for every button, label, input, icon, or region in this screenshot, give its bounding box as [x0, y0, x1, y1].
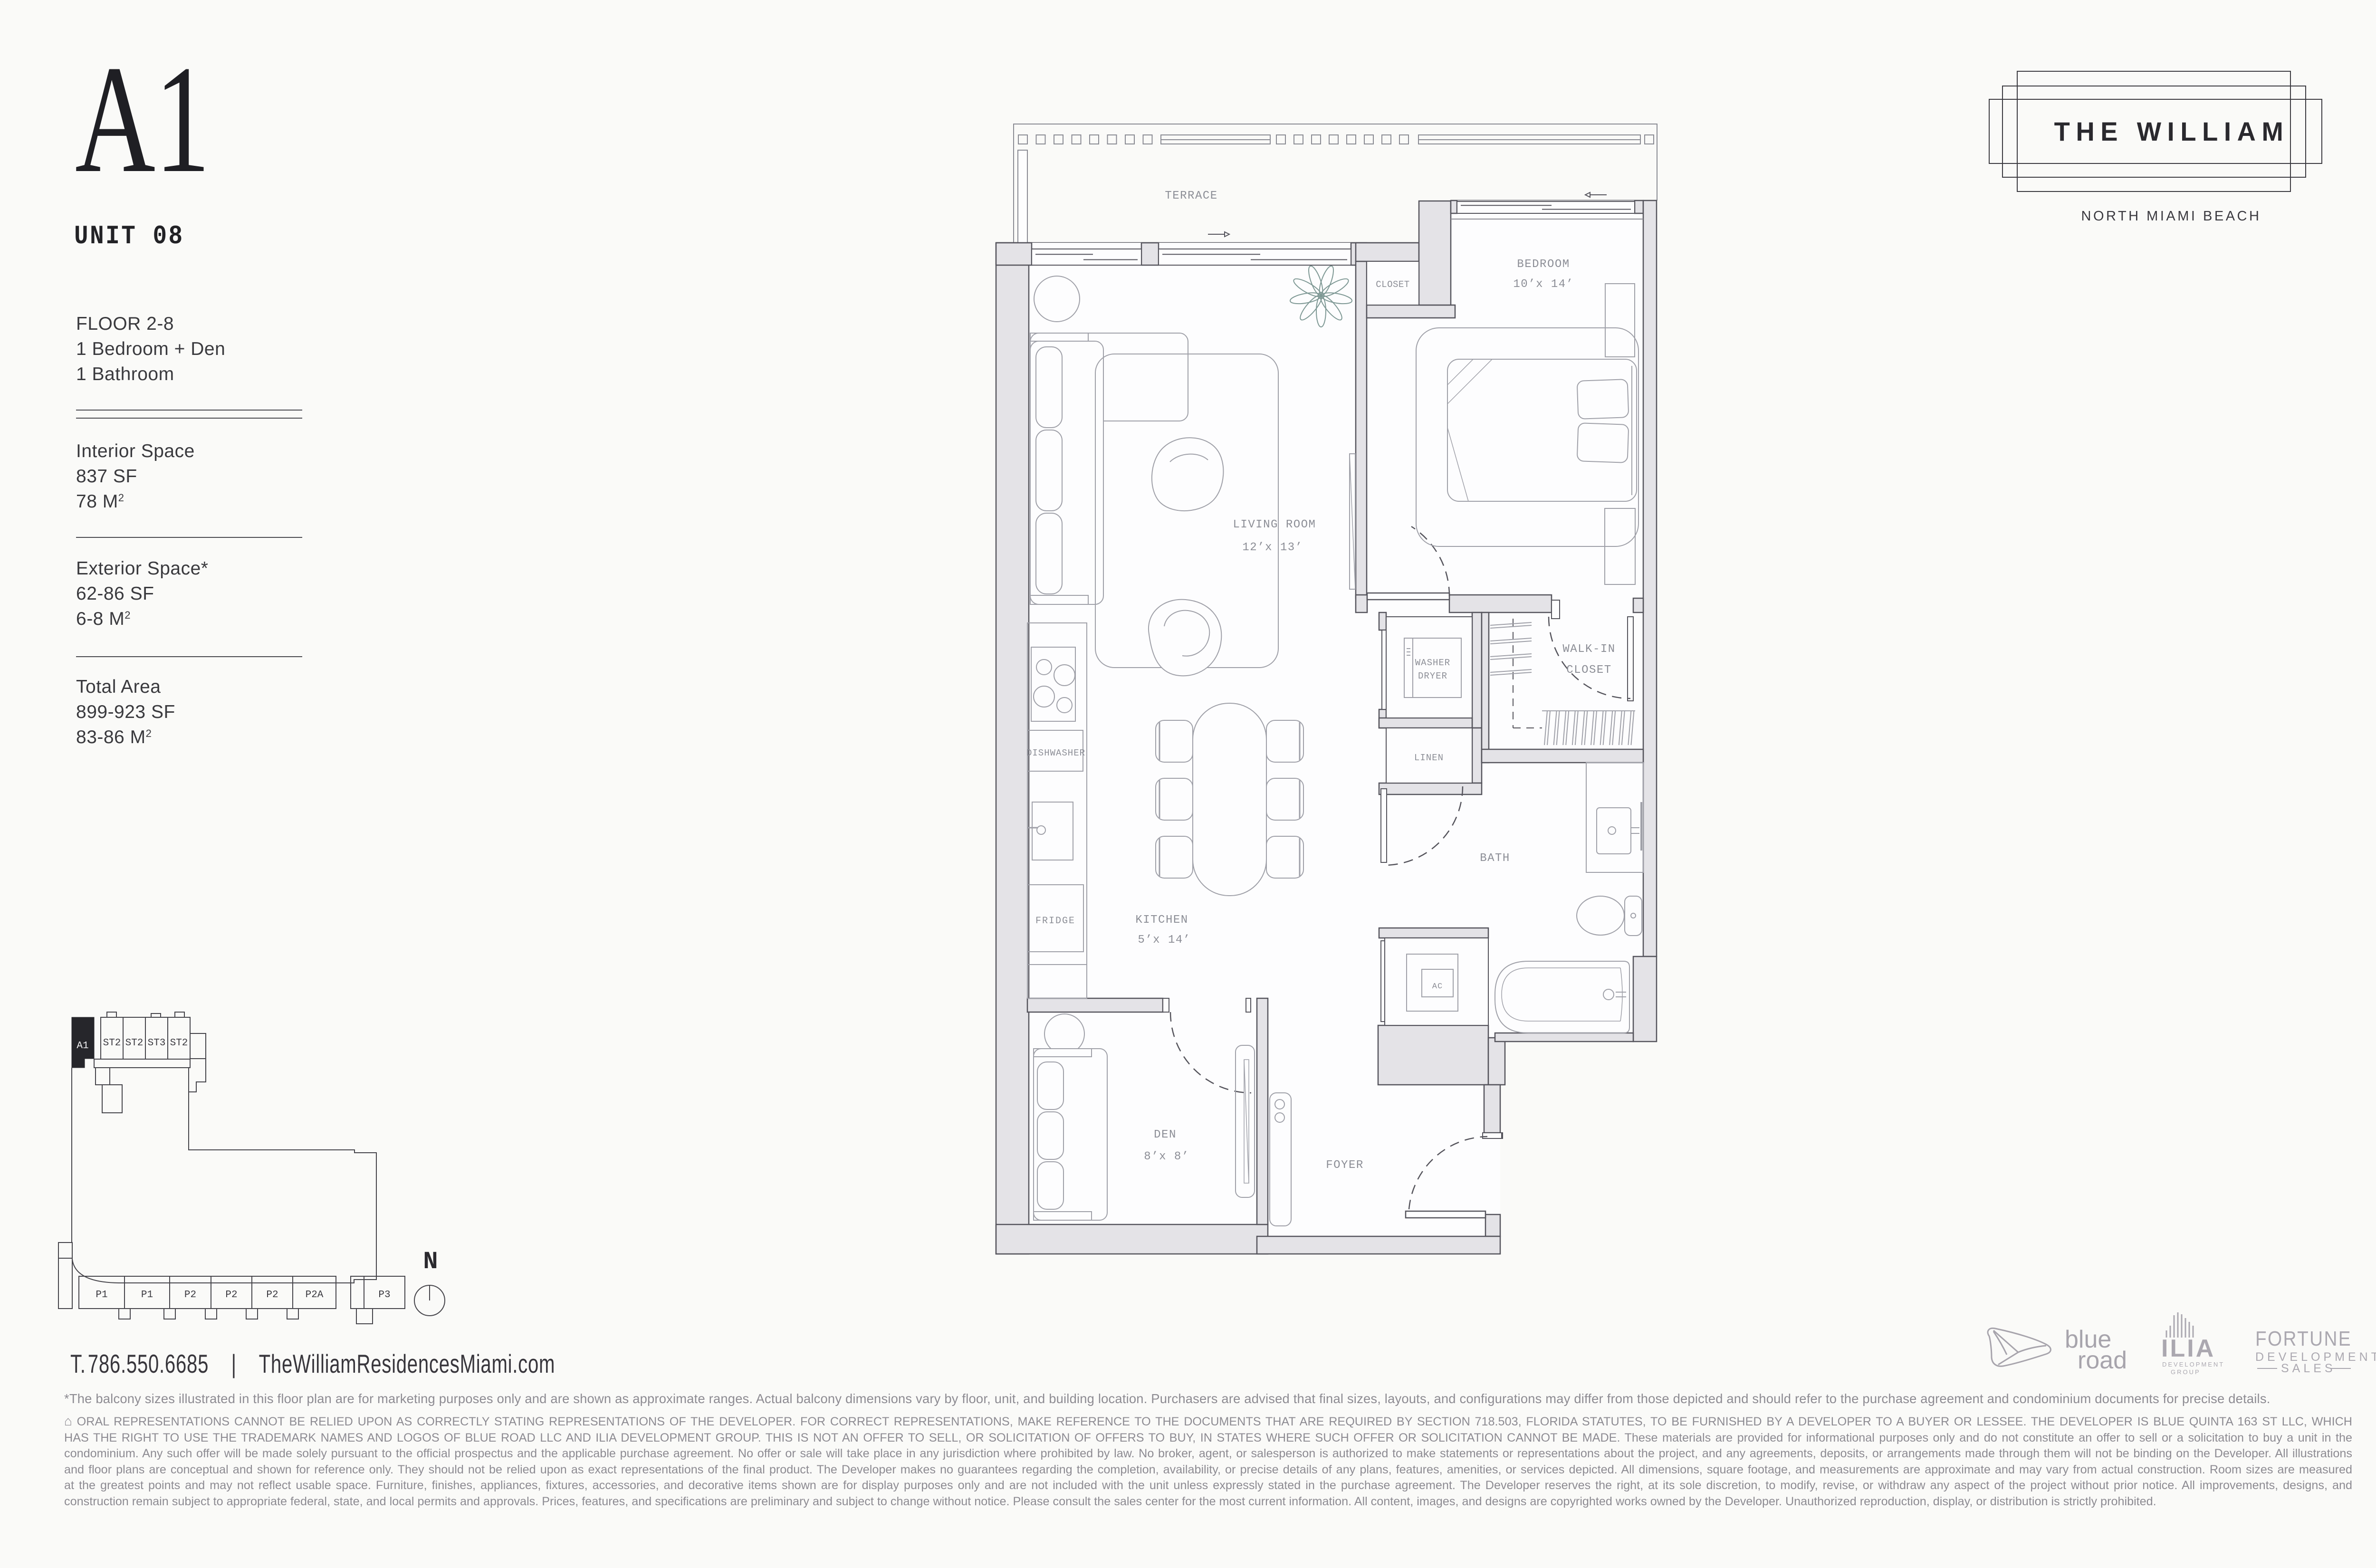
svg-text:FOYER: FOYER — [1326, 1159, 1364, 1172]
svg-text:DRYER: DRYER — [1418, 671, 1447, 681]
svg-text:WASHER: WASHER — [1415, 658, 1450, 668]
svg-text:NORTH MIAMI BEACH: NORTH MIAMI BEACH — [2081, 209, 2261, 224]
svg-text:LIVING ROOM: LIVING ROOM — [1233, 518, 1316, 531]
svg-text:10’x 14’: 10’x 14’ — [1513, 278, 1573, 291]
svg-text:A1: A1 — [77, 1041, 88, 1052]
svg-text:ST2: ST2 — [103, 1038, 121, 1049]
svg-text:FRIDGE: FRIDGE — [1035, 916, 1075, 927]
svg-text:ST2: ST2 — [170, 1038, 188, 1049]
svg-text:DEN: DEN — [1154, 1128, 1177, 1141]
svg-text:KITCHEN: KITCHEN — [1135, 914, 1188, 927]
svg-text:THE WILLIAM: THE WILLIAM — [2054, 116, 2290, 146]
svg-text:P1: P1 — [96, 1290, 107, 1300]
svg-text:WALK-IN: WALK-IN — [1562, 643, 1615, 656]
svg-text:P3: P3 — [378, 1290, 390, 1300]
svg-text:FORTUNE: FORTUNE — [2255, 1327, 2352, 1350]
svg-text:AC: AC — [1432, 982, 1443, 991]
svg-text:LINEN: LINEN — [1414, 753, 1444, 763]
svg-text:CLOSET: CLOSET — [1376, 279, 1409, 290]
svg-text:GROUP: GROUP — [2171, 1368, 2201, 1376]
svg-text:BATH: BATH — [1480, 852, 1510, 865]
svg-text:N: N — [423, 1248, 438, 1276]
svg-text:P2: P2 — [225, 1290, 237, 1300]
svg-text:TERRACE: TERRACE — [1165, 190, 1217, 202]
svg-text:8’x 8’: 8’x 8’ — [1144, 1150, 1189, 1163]
svg-text:5’x 14’: 5’x 14’ — [1138, 934, 1190, 947]
svg-text:P1: P1 — [141, 1290, 153, 1300]
svg-text:CLOSET: CLOSET — [1566, 664, 1611, 677]
svg-text:ILIA: ILIA — [2161, 1335, 2215, 1362]
svg-text:DEVELOPMENT: DEVELOPMENT — [2162, 1361, 2224, 1368]
svg-text:12’x 13’: 12’x 13’ — [1242, 541, 1303, 554]
svg-text:ST3: ST3 — [148, 1038, 166, 1049]
svg-text:DISHWASHER: DISHWASHER — [1026, 748, 1085, 758]
svg-text:road: road — [2078, 1347, 2127, 1374]
svg-text:P2: P2 — [266, 1290, 278, 1300]
svg-text:SALES: SALES — [2281, 1362, 2336, 1375]
svg-text:BEDROOM: BEDROOM — [1517, 258, 1570, 271]
svg-text:P2A: P2A — [306, 1290, 324, 1300]
svg-text:P2: P2 — [184, 1290, 196, 1300]
svg-text:ST2: ST2 — [125, 1038, 144, 1049]
